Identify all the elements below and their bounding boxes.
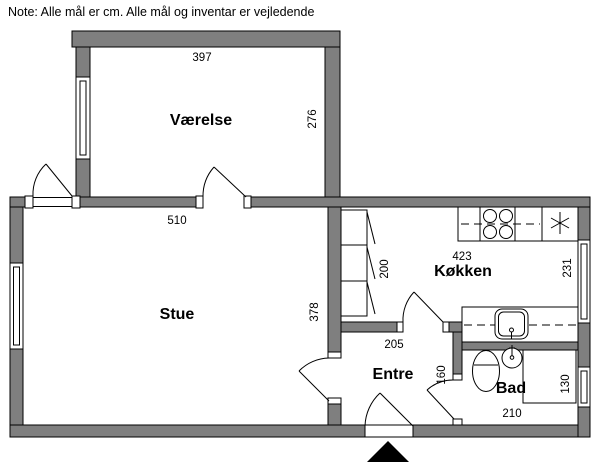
wall-segment [328,404,341,425]
stue-window [10,263,23,349]
wall-segment [251,197,590,207]
balcony-door [33,164,72,196]
entre-width-dim: 205 [384,339,403,351]
wall-segment [578,323,590,367]
koekken-depth-dim: 231 [562,258,574,277]
wall-segment [10,197,25,207]
entrance-door-slab [365,425,413,437]
stue-width-dim: 510 [167,215,186,227]
vaerelse-room-label: Værelse [170,112,232,129]
wall-segment [76,47,90,77]
stue-room-label: Stue [160,306,195,323]
stue-depth-dim: 378 [309,302,321,321]
door-jamb [453,419,462,425]
door-jamb [453,374,462,380]
koekken-window [578,240,590,323]
wall-segment [328,207,341,352]
wall-segment [453,332,462,374]
wall-segment [72,31,340,47]
wall-segment [80,197,196,207]
wall-segment [413,425,590,437]
koekken-room-label: Køkken [434,263,492,280]
door-jambs [25,196,462,437]
floor-plan-canvas: Note: Alle mål er cm. Alle mål og invent… [0,0,600,466]
wardrobe-dim: 200 [379,259,391,278]
wall-segment [325,47,340,197]
floor-plan: 397 Værelse 276 510 Stue 378 200 423 Køk… [0,0,600,466]
wall-segment [10,207,23,263]
kitchen-counter [458,207,578,241]
entre-room-label: Entre [373,366,414,383]
kitchen-sink-counter [462,307,578,342]
vaerelse-depth-dim: 276 [307,109,319,128]
bad-door [427,380,454,419]
entrance-arrow-icon [367,441,409,462]
bad-width-dim: 210 [502,408,521,420]
vaerelse-door [203,167,246,197]
door-jamb [244,196,251,208]
stue-door [299,358,329,401]
door-jamb [328,398,341,404]
wall-segment [10,425,365,437]
wall-segment [341,322,397,332]
wall-segment [578,407,590,437]
door-jamb [25,196,33,208]
door-jamb [328,352,341,358]
entre-depth-dim: 160 [436,365,448,384]
door-jamb [443,322,449,332]
entrance-door [365,393,413,426]
vaerelse-window [76,77,90,159]
door-jamb [72,196,80,208]
kitchen-sink-icon [495,309,528,339]
vaerelse-width-dim: 397 [192,52,211,64]
bad-room-label: Bad [496,380,526,397]
bad-window [578,367,590,407]
wall-segment [449,322,462,332]
wall-segment [10,349,23,437]
wall-segment [578,207,590,240]
wardrobe-icon [341,210,375,316]
koekken-width-dim: 423 [452,251,471,263]
bad-depth-dim: 130 [560,374,572,393]
koekken-door [403,292,443,322]
wall-segment [76,159,90,198]
door-jamb [397,322,403,332]
door-jamb [196,196,203,208]
wall-segment [462,342,578,350]
